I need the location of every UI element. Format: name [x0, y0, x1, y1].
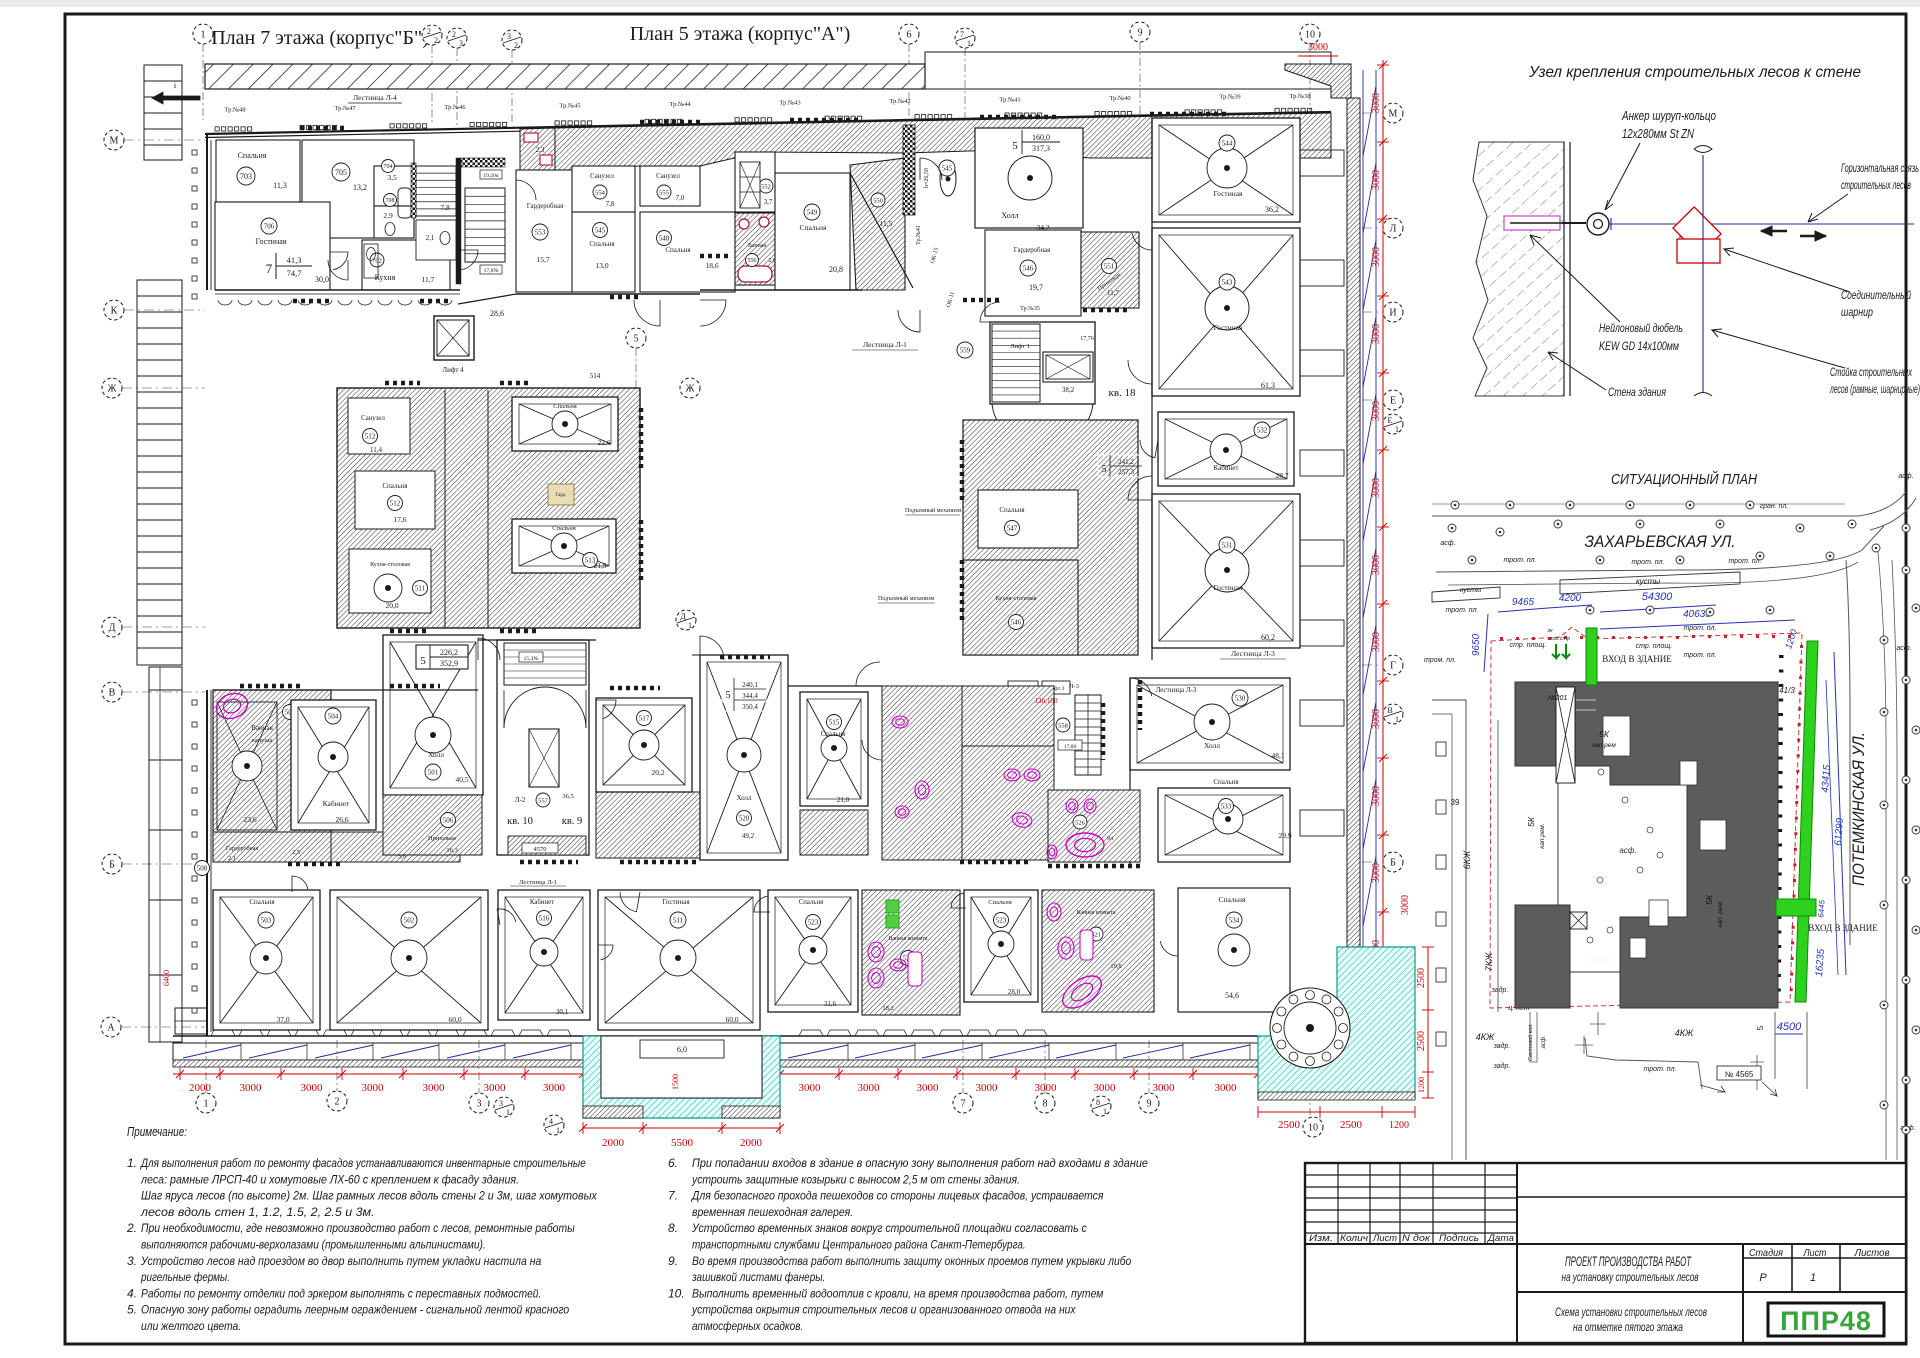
svg-text:А: А [107, 1023, 115, 1034]
svg-text:Ж: Ж [686, 384, 695, 395]
svg-text:6: 6 [907, 30, 912, 41]
svg-text:задр.: задр. [1493, 1042, 1511, 1050]
svg-text:4.: 4. [127, 1286, 137, 1300]
svg-text:531: 531 [1222, 541, 1233, 549]
svg-text:10: 10 [1308, 1123, 1318, 1134]
svg-text:18,6: 18,6 [705, 261, 718, 270]
svg-text:240,1: 240,1 [742, 681, 758, 689]
svg-text:36,5: 36,5 [562, 793, 573, 800]
svg-text:558: 558 [1058, 722, 1068, 729]
svg-text:Тр.№44: Тр.№44 [669, 101, 691, 108]
svg-text:Тр.№43: Тр.№43 [779, 99, 800, 106]
svg-text:трот. пл.: трот. пл. [1446, 607, 1479, 614]
svg-text:И: И [1389, 308, 1396, 319]
svg-text:трот. пл.: трот. пл. [1684, 652, 1717, 659]
svg-text:3000: 3000 [1371, 478, 1382, 498]
svg-text:Схема установки строительных л: Схема установки строительных лесов [1555, 1305, 1707, 1319]
svg-text:523: 523 [996, 916, 1007, 924]
svg-text:стр. площ.: стр. площ. [1636, 643, 1673, 650]
svg-text:Спальня: Спальня [999, 506, 1025, 514]
svg-text:5: 5 [726, 690, 731, 701]
svg-text:3000: 3000 [1371, 786, 1382, 806]
svg-text:Лестница Л-3: Лестница Л-3 [1231, 649, 1275, 658]
svg-text:Тр.№41: Тр.№41 [916, 225, 922, 245]
svg-text:40,5: 40,5 [455, 775, 468, 784]
svg-text:1: 1 [967, 39, 971, 48]
svg-text:Тр.№46: Тр.№46 [444, 104, 466, 111]
svg-text:кв. 18: кв. 18 [1108, 387, 1136, 399]
svg-text:1: 1 [688, 621, 692, 630]
svg-text:2500: 2500 [1278, 1119, 1301, 1131]
svg-text:1: 1 [1810, 1272, 1816, 1284]
svg-text:3000: 3000 [799, 1082, 822, 1094]
svg-text:15,3№: 15,3№ [524, 656, 539, 662]
svg-text:703: 703 [240, 172, 252, 181]
svg-text:Устройство лесов над проездом: Устройство лесов над проездом во двор вы… [140, 1254, 541, 1268]
svg-text:514: 514 [590, 372, 601, 380]
svg-text:Ванная комната: Ванная комната [888, 936, 927, 942]
svg-text:508: 508 [197, 864, 208, 872]
svg-text:Устройство временных знаков в: Устройство временных знаков вокруг строи… [691, 1221, 1087, 1235]
svg-text:Кухня-столовая: Кухня-столовая [370, 562, 410, 568]
svg-text:Подъемный механизм: Подъемный механизм [905, 507, 961, 514]
svg-text:3000: 3000 [1094, 1082, 1117, 1094]
svg-text:74,7: 74,7 [287, 268, 302, 278]
svg-text:Гардеробная: Гардеробная [527, 203, 564, 210]
svg-text:кв. 9: кв. 9 [562, 816, 583, 827]
svg-text:ПОТЕМКИНСКАЯ УЛ.: ПОТЕМКИНСКАЯ УЛ. [1849, 732, 1868, 886]
svg-text:17,8№: 17,8№ [484, 268, 499, 274]
svg-text:5К: 5К [1526, 816, 1536, 827]
svg-text:534: 534 [1229, 916, 1240, 924]
svg-text:2: 2 [452, 30, 456, 39]
svg-text:3000: 3000 [1035, 1082, 1058, 1094]
svg-text:2,5: 2,5 [292, 849, 300, 856]
svg-text:Работы по ремонту отделки под: Работы по ремонту отделки под эркером вы… [141, 1286, 541, 1300]
svg-text:3000: 3000 [1371, 709, 1382, 729]
svg-text:30,1: 30,1 [556, 1008, 569, 1016]
svg-text:17,6: 17,6 [393, 515, 406, 524]
svg-text:29,9: 29,9 [1278, 831, 1291, 840]
svg-text:устроить защитные козырьки с в: устроить защитные козырьки с выносом 2,5… [691, 1172, 1020, 1186]
svg-text:3000: 3000 [1371, 170, 1382, 190]
svg-text:N док: N док [1402, 1233, 1431, 1244]
svg-text:3000: 3000 [1308, 42, 1328, 53]
svg-text:трот. пл.: трот. пл. [1504, 557, 1537, 564]
svg-text:3000: 3000 [1371, 401, 1382, 421]
svg-text:550: 550 [873, 197, 883, 204]
svg-text:2.: 2. [126, 1221, 137, 1235]
svg-text:551: 551 [1104, 262, 1115, 270]
svg-text:533: 533 [1221, 802, 1232, 810]
svg-text:Для выполнения работ по ремонт: Для выполнения работ по ремонту фасадов … [139, 1156, 586, 1170]
svg-text:9465: 9465 [1512, 597, 1535, 608]
svg-text:36,2: 36,2 [1265, 205, 1279, 214]
svg-text:2: 2 [427, 27, 431, 36]
svg-text:60,0: 60,0 [725, 1015, 738, 1024]
svg-text:Тр.№45: Тр.№45 [559, 102, 580, 109]
svg-text:Соединительный: Соединительный [1841, 288, 1911, 302]
svg-text:План 5 этажа (корпус"А"): План 5 этажа (корпус"А") [630, 23, 851, 45]
svg-text:37,0: 37,0 [276, 1015, 289, 1024]
svg-text:3000: 3000 [1371, 93, 1382, 113]
svg-text:М: М [1389, 109, 1398, 120]
svg-text:4570: 4570 [534, 846, 547, 853]
svg-text:Лестница Л-3: Лестница Л-3 [1156, 686, 1197, 694]
svg-text:Холл: Холл [1001, 211, 1018, 220]
svg-text:3000: 3000 [240, 1082, 263, 1094]
svg-text:ригельные фермы.: ригельные фермы. [140, 1270, 230, 1284]
svg-text:6.: 6. [668, 1156, 678, 1170]
svg-text:526: 526 [1075, 819, 1086, 826]
svg-text:5К: 5К [1599, 729, 1610, 739]
svg-text:Изм.: Изм. [1309, 1233, 1333, 1244]
svg-text:4500: 4500 [1777, 1021, 1802, 1033]
svg-text:Спальня: Спальня [238, 151, 267, 160]
svg-text:Спальня: Спальня [553, 403, 576, 410]
svg-text:708: 708 [386, 198, 395, 204]
svg-text:ПРОЕКТ ПРОИЗВОДСТВА РАБОТ: ПРОЕКТ ПРОИЗВОДСТВА РАБОТ [1565, 1254, 1692, 1269]
svg-text:16,3: 16,3 [446, 847, 457, 854]
svg-text:1200: 1200 [1389, 1120, 1409, 1131]
svg-text:39: 39 [1451, 798, 1460, 807]
svg-text:61,3: 61,3 [1261, 381, 1275, 390]
svg-text:3000: 3000 [858, 1082, 881, 1094]
svg-text:31,6: 31,6 [824, 1000, 837, 1008]
svg-text:выполняются рабочими-верхолаза: выполняются рабочими-верхолазами (промыш… [141, 1238, 486, 1252]
svg-text:28,6: 28,6 [490, 309, 504, 318]
svg-text:Лист: Лист [1372, 1233, 1397, 1244]
svg-text:Б: Б [109, 860, 115, 871]
svg-text:19,8: 19,8 [1110, 963, 1121, 970]
svg-text:Тр.№42: Тр.№42 [889, 98, 910, 105]
svg-text:тром. пл.: тром. пл. [1424, 657, 1456, 664]
svg-text:Л-2: Л-2 [515, 796, 526, 804]
svg-text:501: 501 [428, 768, 439, 776]
svg-text:Спальня: Спальня [382, 482, 408, 490]
svg-text:38,2: 38,2 [1062, 386, 1075, 394]
svg-text:Гардеробная: Гардеробная [226, 845, 259, 852]
svg-text:Ж: Ж [108, 384, 117, 395]
svg-text:60,0: 60,0 [448, 1015, 461, 1024]
svg-text:6400: 6400 [162, 970, 171, 986]
svg-text:кв. 10: кв. 10 [507, 816, 533, 827]
svg-text:задр.: задр. [1493, 1062, 1511, 1070]
svg-text:7.: 7. [668, 1189, 678, 1203]
svg-text:8.: 8. [668, 1221, 678, 1235]
svg-text:1: 1 [1103, 1107, 1107, 1116]
svg-text:23,6: 23,6 [243, 815, 256, 824]
svg-text:54300: 54300 [1642, 591, 1673, 603]
svg-text:43415: 43415 [1820, 764, 1833, 793]
svg-text:3: 3 [477, 1099, 482, 1110]
svg-text:Прихожая: Прихожая [428, 835, 456, 842]
svg-text:16235: 16235 [1814, 948, 1827, 977]
svg-text:546: 546 [1023, 264, 1034, 272]
svg-text:кап.рем.: кап.рем. [1539, 823, 1546, 849]
svg-text:Стена здания: Стена здания [1608, 385, 1666, 399]
svg-text:2,3: 2,3 [536, 146, 545, 154]
svg-text:13,2: 13,2 [353, 183, 367, 192]
svg-text:Д: Д [680, 612, 686, 621]
svg-text:Л-3: Л-3 [1069, 683, 1079, 690]
svg-text:Гостиная: Гостиная [1213, 323, 1243, 332]
svg-text:3000: 3000 [301, 1082, 324, 1094]
svg-text:61299: 61299 [1833, 817, 1846, 846]
svg-text:3.: 3. [127, 1254, 137, 1268]
svg-text:10.: 10. [668, 1286, 685, 1300]
svg-text:2000: 2000 [602, 1137, 625, 1149]
svg-text:3,7: 3,7 [764, 198, 773, 206]
svg-text:Лифт 1: Лифт 1 [1010, 343, 1030, 350]
svg-text:Тр.№48: Тр.№48 [224, 107, 245, 114]
svg-text:Гард.: Гард. [555, 493, 566, 498]
svg-text:3000: 3000 [543, 1082, 566, 1094]
svg-text:Г: Г [1390, 661, 1396, 672]
svg-text:3000: 3000 [1371, 863, 1382, 883]
svg-text:асф.: асф. [1898, 473, 1913, 480]
svg-text:временная пешеходная галерея.: временная пешеходная галерея. [692, 1205, 853, 1219]
svg-text:28,0: 28,0 [1008, 988, 1021, 996]
svg-text:Лист: Лист [1803, 1247, 1827, 1259]
svg-text:Санузел: Санузел [590, 173, 614, 180]
svg-text:257,3: 257,3 [1118, 468, 1134, 476]
svg-text:3000: 3000 [1371, 247, 1382, 267]
svg-text:шарнир: шарнир [1841, 305, 1873, 319]
svg-text:кусты: кусты [1460, 587, 1482, 594]
svg-text:22,6: 22,6 [597, 438, 610, 447]
svg-text:523: 523 [808, 918, 819, 926]
svg-text:1: 1 [556, 1126, 560, 1135]
svg-text:лесов вдоль стен 1, 1.2, 1.5,: лесов вдоль стен 1, 1.2, 1.5, 2, 2.5 и 3… [140, 1205, 375, 1219]
svg-text:7,8: 7,8 [440, 203, 450, 212]
svg-text:5: 5 [420, 655, 426, 667]
svg-text:трот. пл.: трот. пл. [1729, 558, 1762, 565]
svg-text:Лестница Л-1: Лестница Л-1 [863, 340, 907, 349]
svg-text:Спальня: Спальня [249, 898, 275, 906]
svg-text:317,3: 317,3 [1032, 144, 1050, 153]
svg-text:7: 7 [266, 261, 273, 276]
svg-text:Тр.№47: Тр.№47 [334, 105, 356, 112]
svg-text:512: 512 [390, 499, 401, 507]
svg-text:леса: рамные ЛРСП-40 и хомутов: леса: рамные ЛРСП-40 и хомутовые ЛХ-60 с… [140, 1172, 519, 1186]
svg-text:553: 553 [535, 228, 546, 236]
svg-text:Кабинет: Кабинет [1214, 464, 1239, 472]
svg-text:Тр.№41: Тр.№41 [999, 97, 1020, 104]
svg-text:кусты: кусты [1636, 577, 1660, 586]
svg-text:548: 548 [659, 234, 670, 242]
svg-text:3000: 3000 [1400, 895, 1411, 915]
svg-text:6445: 6445 [1816, 899, 1826, 918]
svg-text:4КЖ: 4КЖ [1675, 1028, 1694, 1038]
svg-text:350,4: 350,4 [742, 703, 758, 711]
svg-text:545: 545 [942, 164, 953, 172]
svg-text:705: 705 [335, 168, 347, 177]
svg-text:26,6: 26,6 [335, 815, 348, 824]
svg-text:1.: 1. [127, 1156, 137, 1170]
svg-text:Шаг яруса лесов (по высоте) 2м: Шаг яруса лесов (по высоте) 2м. Шаг рамн… [141, 1189, 598, 1203]
svg-text:11,4: 11,4 [370, 446, 382, 454]
svg-text:Подпись: Подпись [1439, 1233, 1479, 1244]
svg-text:Дата: Дата [1487, 1233, 1514, 1244]
svg-text:Спальня: Спальня [821, 731, 846, 738]
svg-text:6,0: 6,0 [677, 1045, 687, 1054]
svg-text:4200: 4200 [1559, 593, 1582, 604]
svg-text:Холл: Холл [736, 794, 752, 802]
svg-text:3000: 3000 [976, 1082, 999, 1094]
svg-text:9.: 9. [668, 1254, 678, 1268]
svg-text:задр.: задр. [1491, 986, 1509, 994]
svg-text:555: 555 [659, 189, 669, 196]
svg-text:5К: 5К [1704, 894, 1714, 905]
svg-text:6КЖ: 6КЖ [1462, 850, 1472, 869]
svg-text:ППР48: ППР48 [1780, 1306, 1872, 1336]
svg-text:Кабинет: Кабинет [323, 799, 350, 808]
svg-text:11,7: 11,7 [422, 275, 435, 284]
svg-text:на отметке пятого этажа: на отметке пятого этажа [1573, 1320, 1683, 1334]
svg-text:3000: 3000 [1215, 1082, 1238, 1094]
svg-text:4КЖ: 4КЖ [1476, 1032, 1495, 1042]
svg-text:Для безопасного прохода пешехо: Для безопасного прохода пешеходов со сто… [690, 1189, 1104, 1203]
svg-text:Нейлоновый дюбель: Нейлоновый дюбель [1599, 321, 1683, 335]
svg-text:3: 3 [459, 39, 463, 48]
svg-text:В: В [1387, 706, 1392, 715]
svg-text:530: 530 [1235, 694, 1246, 702]
svg-text:1500: 1500 [671, 1074, 680, 1090]
svg-text:зов.стр: зов.стр [1549, 636, 1570, 642]
svg-text:3: 3 [499, 1099, 503, 1108]
svg-text:556: 556 [748, 258, 757, 264]
svg-text:3000: 3000 [1371, 632, 1382, 652]
svg-text:Стадия: Стадия [1749, 1247, 1783, 1259]
svg-text:557: 557 [538, 797, 549, 804]
svg-text:асф.: асф. [1541, 1035, 1547, 1048]
svg-text:515: 515 [829, 718, 840, 726]
svg-text:28,7: 28,7 [1275, 471, 1288, 480]
svg-text:Спальня: Спальня [589, 240, 615, 248]
svg-text:2500: 2500 [1416, 1031, 1427, 1051]
svg-text:на установку строительных лесо: на установку строительных лесов [1562, 1270, 1699, 1284]
svg-text:К: К [111, 306, 118, 317]
svg-text:54,6: 54,6 [1225, 991, 1239, 1000]
svg-text:1: 1 [204, 1099, 209, 1110]
svg-text:транспортными службами Централ: транспортными службами Центрального райо… [692, 1238, 1026, 1252]
svg-text:Холл: Холл [428, 750, 444, 759]
svg-text:5: 5 [1012, 140, 1018, 152]
svg-text:706: 706 [264, 222, 275, 230]
svg-text:Тр.№39: Тр.№39 [1219, 94, 1240, 101]
svg-text:Гостиная: Гостиная [662, 898, 690, 906]
svg-text:352,9: 352,9 [440, 659, 458, 668]
svg-text:3000: 3000 [423, 1082, 446, 1094]
svg-text:Лестница Л-1: Лестница Л-1 [519, 879, 557, 886]
svg-text:2,9: 2,9 [383, 211, 393, 220]
svg-text:Лестница Л-4: Лестница Л-4 [353, 93, 397, 102]
svg-text:М: М [110, 136, 119, 147]
svg-text:12x280мм St ZN: 12x280мм St ZN [1622, 127, 1695, 141]
svg-text:ВХОД В ЗДАНИЕ: ВХОД В ЗДАНИЕ [1808, 923, 1878, 933]
svg-text:3000: 3000 [1371, 324, 1382, 344]
svg-text:кап.рем: кап.рем [1592, 742, 1616, 749]
svg-text:гран. пл.: гран. пл. [1760, 503, 1789, 510]
svg-text:21,9: 21,9 [593, 561, 606, 570]
svg-text:511: 511 [673, 916, 684, 924]
svg-text:2500: 2500 [1340, 1119, 1363, 1131]
svg-text:асф.: асф. [1440, 540, 1455, 547]
svg-text:Р: Р [1759, 1272, 1767, 1284]
svg-text:2,1: 2,1 [228, 855, 236, 862]
svg-text:19,7: 19,7 [1029, 283, 1043, 292]
svg-text:2500: 2500 [1416, 968, 1427, 988]
svg-text:Гардеробная: Гардеробная [1014, 247, 1051, 254]
svg-text:545: 545 [595, 226, 606, 234]
svg-text:Спальня: Спальня [552, 525, 575, 532]
svg-text:4: 4 [549, 1117, 553, 1126]
svg-text:Спальня: Спальня [665, 246, 691, 254]
svg-text:13,0: 13,0 [595, 261, 608, 270]
svg-text:Примечание:: Примечание: [127, 1125, 187, 1139]
svg-text:1200: 1200 [1417, 1077, 1426, 1093]
svg-text:трот. пл.: трот. пл. [1632, 559, 1665, 566]
svg-text:2: 2 [434, 36, 438, 45]
svg-text:10: 10 [1305, 30, 1315, 41]
svg-text:1: 1 [506, 1108, 510, 1117]
svg-text:512: 512 [365, 432, 376, 440]
svg-text:Кухня-столовая: Кухня-столовая [995, 595, 1036, 602]
svg-text:517: 517 [639, 714, 650, 722]
svg-text:Лифт 4: Лифт 4 [442, 366, 464, 374]
svg-text:160,0: 160,0 [1032, 133, 1050, 142]
svg-text:3000: 3000 [1371, 555, 1382, 575]
svg-text:5: 5 [634, 334, 639, 345]
svg-text:18,2: 18,2 [882, 1005, 893, 1012]
svg-text:Колич: Колич [1340, 1233, 1368, 1244]
svg-text:h=26,50: h=26,50 [924, 168, 930, 188]
svg-text:9650: 9650 [1471, 633, 1482, 656]
svg-text:9: 9 [1138, 28, 1143, 39]
svg-text:кап. рем.: кап. рем. [1717, 900, 1724, 927]
svg-text:7,0: 7,0 [676, 194, 685, 202]
svg-text:2: 2 [335, 1097, 340, 1108]
svg-text:2000: 2000 [740, 1137, 763, 1149]
svg-text:Ванная: Ванная [748, 243, 766, 249]
svg-text:ВХОД В ЗДАНИЕ: ВХОД В ЗДАНИЕ [1602, 654, 1672, 664]
svg-text:543: 543 [1222, 278, 1233, 286]
svg-text:KEW GD 14x100мм: KEW GD 14x100мм [1599, 339, 1679, 353]
svg-text:№201: №201 [1548, 695, 1567, 702]
svg-text:226,2: 226,2 [440, 648, 458, 657]
svg-text:9л: 9л [1107, 836, 1113, 842]
svg-text:Листов: Листов [1854, 1247, 1890, 1259]
svg-text:Холл: Холл [1204, 741, 1220, 750]
svg-text:Подъемный механизм: Подъемный механизм [878, 595, 934, 602]
svg-text:лесов (рамные, шарнирные): лесов (рамные, шарнирные) [1829, 382, 1920, 396]
svg-text:Узел крепления строительных ле: Узел крепления строительных лесов к стен… [1528, 64, 1861, 81]
svg-text:3: 3 [507, 32, 511, 41]
svg-text:трот. пл.: трот. пл. [1684, 625, 1717, 632]
svg-text:Ванная комната: Ванная комната [1076, 910, 1115, 916]
svg-text:9: 9 [1147, 1099, 1152, 1110]
svg-text:зк: зк [1546, 628, 1553, 634]
svg-text:704: 704 [384, 164, 393, 170]
svg-text:1: 1 [1395, 425, 1399, 434]
svg-text:Кабинет: Кабинет [530, 899, 554, 906]
svg-text:Спальня: Спальня [988, 899, 1011, 906]
svg-text:41/3: 41/3 [1779, 686, 1795, 695]
svg-text:41,3: 41,3 [287, 255, 302, 265]
svg-text:2: 2 [514, 41, 518, 50]
svg-text:Световой кол.: Световой кол. [1527, 1023, 1534, 1061]
